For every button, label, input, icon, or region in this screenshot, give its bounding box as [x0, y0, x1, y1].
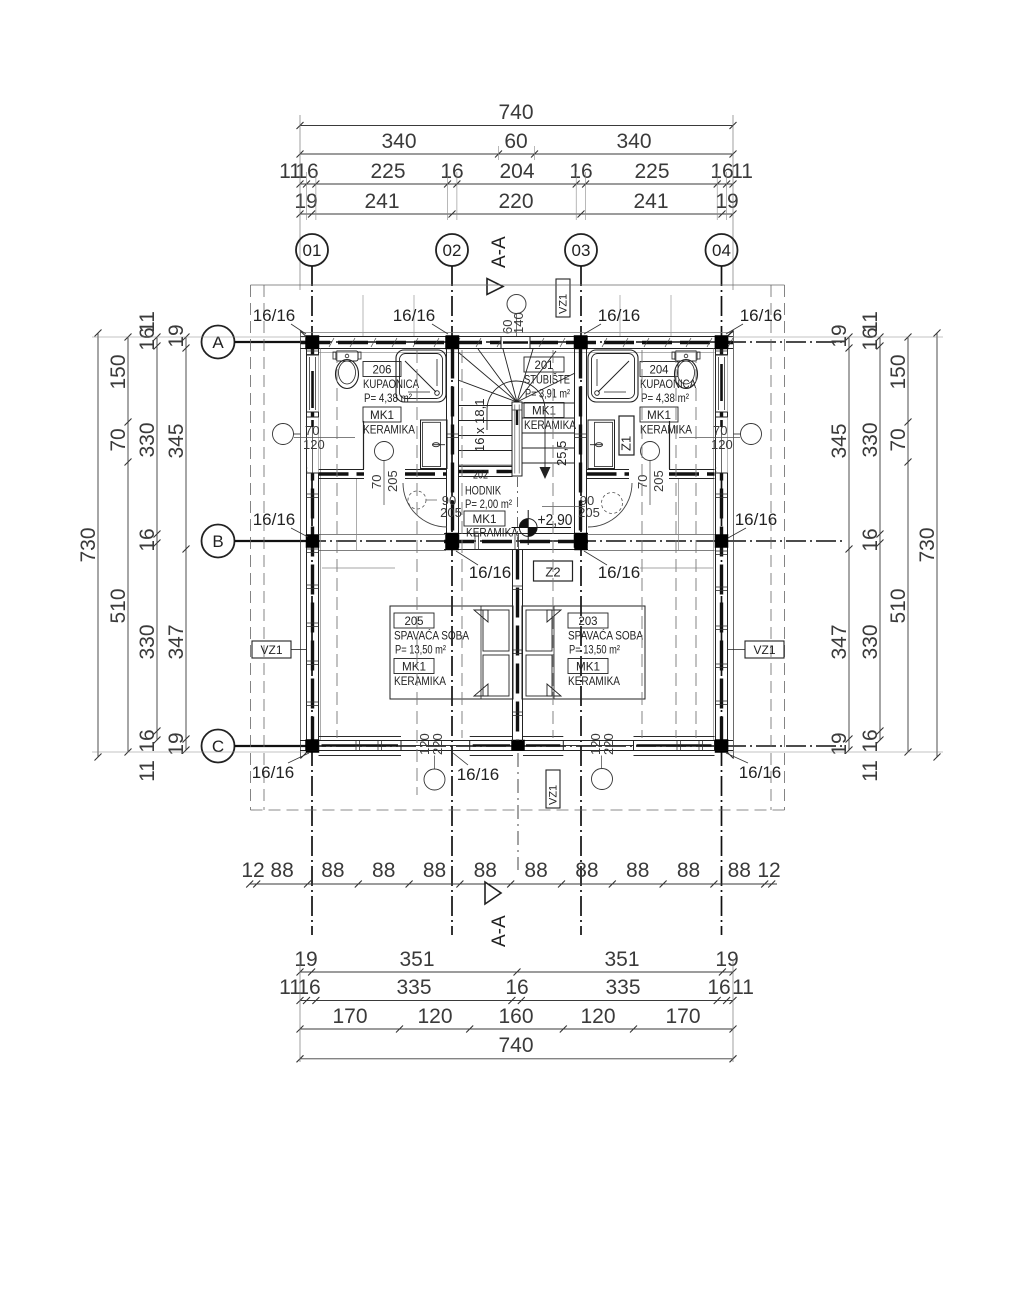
- svg-text:510: 510: [887, 588, 910, 623]
- svg-text:220: 220: [430, 733, 445, 755]
- svg-text:KERAMIKA: KERAMIKA: [394, 674, 446, 688]
- svg-text:HODNIK: HODNIK: [465, 484, 501, 498]
- svg-text:16/16: 16/16: [253, 510, 296, 529]
- svg-text:16: 16: [569, 160, 592, 183]
- svg-text:19: 19: [828, 324, 851, 347]
- svg-text:16/16: 16/16: [393, 306, 436, 325]
- svg-text:335: 335: [396, 976, 431, 999]
- svg-text:740: 740: [498, 101, 533, 124]
- svg-text:MK1: MK1: [647, 408, 671, 422]
- svg-text:19: 19: [165, 324, 188, 347]
- svg-text:SPAVAĆA SOBA: SPAVAĆA SOBA: [568, 628, 643, 643]
- svg-text:345: 345: [828, 423, 851, 458]
- svg-text:220: 220: [498, 190, 533, 213]
- svg-text:16: 16: [136, 327, 159, 350]
- svg-text:19: 19: [715, 190, 738, 213]
- svg-text:16/16: 16/16: [252, 763, 295, 782]
- svg-text:04: 04: [712, 241, 731, 260]
- svg-text:330: 330: [136, 624, 159, 659]
- svg-text:88: 88: [728, 859, 751, 882]
- svg-text:A-A: A-A: [489, 236, 510, 268]
- svg-text:204: 204: [650, 363, 669, 377]
- svg-text:P= 3,91 m²: P= 3,91 m²: [525, 387, 570, 401]
- svg-text:204: 204: [499, 160, 534, 183]
- svg-text:P= 4,38 m²: P= 4,38 m²: [364, 391, 412, 405]
- svg-text:KERAMIKA: KERAMIKA: [363, 423, 415, 437]
- svg-text:70: 70: [635, 475, 650, 489]
- svg-text:16: 16: [859, 729, 882, 752]
- svg-text:730: 730: [916, 527, 939, 562]
- svg-text:16 x 18,1: 16 x 18,1: [472, 399, 487, 453]
- svg-text:88: 88: [372, 859, 395, 882]
- svg-text:201: 201: [535, 358, 554, 372]
- svg-text:220: 220: [601, 733, 616, 755]
- svg-text:60: 60: [504, 130, 527, 153]
- svg-text:KERAMIKA: KERAMIKA: [568, 674, 620, 688]
- svg-text:16/16: 16/16: [740, 306, 783, 325]
- svg-text:KERAMIKA: KERAMIKA: [524, 418, 576, 432]
- svg-text:16: 16: [859, 327, 882, 350]
- svg-text:351: 351: [399, 948, 434, 971]
- svg-text:11: 11: [732, 976, 754, 999]
- svg-text:160: 160: [498, 1005, 533, 1028]
- svg-text:88: 88: [677, 859, 700, 882]
- svg-text:16: 16: [505, 976, 528, 999]
- svg-text:11: 11: [859, 760, 882, 782]
- svg-text:19: 19: [715, 948, 738, 971]
- svg-text:70: 70: [887, 428, 910, 451]
- svg-text:P= 13,50 m²: P= 13,50 m²: [395, 643, 446, 657]
- svg-text:SPAVAĆA SOBA: SPAVAĆA SOBA: [394, 628, 469, 643]
- svg-text:25,5: 25,5: [554, 441, 569, 466]
- svg-text:88: 88: [474, 859, 497, 882]
- svg-text:330: 330: [136, 422, 159, 457]
- svg-text:205: 205: [440, 505, 462, 520]
- svg-text:70: 70: [107, 428, 130, 451]
- svg-text:16/16: 16/16: [457, 765, 500, 784]
- svg-text:205: 205: [578, 505, 600, 520]
- svg-text:MK1: MK1: [370, 408, 394, 422]
- svg-text:+2,90: +2,90: [538, 512, 573, 529]
- svg-text:12: 12: [757, 859, 780, 882]
- svg-text:120: 120: [580, 1005, 615, 1028]
- svg-text:330: 330: [859, 624, 882, 659]
- svg-text:P= 4,38 m²: P= 4,38 m²: [641, 391, 689, 405]
- svg-text:70: 70: [369, 475, 384, 489]
- svg-text:225: 225: [370, 160, 405, 183]
- svg-text:330: 330: [859, 422, 882, 457]
- svg-text:170: 170: [332, 1005, 367, 1028]
- svg-text:C: C: [212, 737, 224, 756]
- svg-text:345: 345: [165, 423, 188, 458]
- svg-text:70: 70: [713, 423, 727, 438]
- svg-text:340: 340: [616, 130, 651, 153]
- svg-text:11: 11: [731, 160, 753, 183]
- svg-text:Z1: Z1: [619, 436, 634, 451]
- svg-text:88: 88: [321, 859, 344, 882]
- svg-text:150: 150: [107, 354, 130, 389]
- svg-text:120: 120: [417, 1005, 452, 1028]
- svg-text:KERAMIKA: KERAMIKA: [640, 423, 692, 437]
- svg-text:MK1: MK1: [473, 512, 497, 526]
- svg-text:16: 16: [136, 528, 159, 551]
- svg-text:16/16: 16/16: [739, 763, 782, 782]
- svg-text:88: 88: [626, 859, 649, 882]
- svg-text:510: 510: [107, 588, 130, 623]
- svg-text:12: 12: [241, 859, 264, 882]
- svg-text:16: 16: [707, 976, 730, 999]
- svg-text:70: 70: [305, 423, 319, 438]
- svg-text:VZ1: VZ1: [558, 294, 570, 314]
- svg-text:16: 16: [295, 160, 318, 183]
- svg-text:P= 13,50 m²: P= 13,50 m²: [569, 643, 620, 657]
- svg-text:02: 02: [443, 241, 462, 260]
- svg-text:730: 730: [77, 527, 100, 562]
- svg-text:88: 88: [575, 859, 598, 882]
- svg-text:120: 120: [711, 437, 733, 452]
- svg-text:16: 16: [136, 729, 159, 752]
- svg-text:202: 202: [473, 468, 488, 482]
- svg-text:340: 340: [381, 130, 416, 153]
- svg-text:205: 205: [385, 470, 400, 492]
- svg-text:170: 170: [665, 1005, 700, 1028]
- svg-text:203: 203: [579, 614, 598, 628]
- svg-text:KERAMIKA: KERAMIKA: [466, 526, 518, 540]
- svg-text:MK1: MK1: [402, 660, 426, 674]
- svg-text:351: 351: [604, 948, 639, 971]
- svg-text:03: 03: [572, 241, 591, 260]
- svg-text:16/16: 16/16: [598, 306, 641, 325]
- svg-text:KUPAONICA: KUPAONICA: [363, 377, 419, 391]
- svg-text:16/16: 16/16: [253, 306, 296, 325]
- svg-text:11: 11: [136, 760, 159, 782]
- svg-text:241: 241: [633, 190, 668, 213]
- svg-text:16: 16: [440, 160, 463, 183]
- svg-text:206: 206: [373, 363, 392, 377]
- svg-text:16: 16: [859, 528, 882, 551]
- svg-text:205: 205: [651, 470, 666, 492]
- svg-text:MK1: MK1: [576, 660, 600, 674]
- svg-text:347: 347: [165, 624, 188, 659]
- svg-text:88: 88: [524, 859, 547, 882]
- svg-text:B: B: [212, 532, 223, 551]
- svg-text:VZ1: VZ1: [548, 785, 560, 805]
- svg-text:88: 88: [270, 859, 293, 882]
- svg-text:740: 740: [498, 1034, 533, 1057]
- svg-text:335: 335: [605, 976, 640, 999]
- svg-text:A: A: [212, 333, 224, 352]
- svg-text:A-A: A-A: [489, 915, 510, 947]
- svg-text:16/16: 16/16: [598, 563, 641, 582]
- svg-text:347: 347: [828, 624, 851, 659]
- svg-text:225: 225: [634, 160, 669, 183]
- svg-text:150: 150: [887, 354, 910, 389]
- svg-text:88: 88: [423, 859, 446, 882]
- svg-text:16/16: 16/16: [735, 510, 778, 529]
- svg-text:01: 01: [303, 241, 322, 260]
- svg-text:241: 241: [364, 190, 399, 213]
- svg-text:19: 19: [294, 190, 317, 213]
- svg-text:16: 16: [297, 976, 320, 999]
- svg-text:140: 140: [511, 312, 526, 334]
- svg-text:120: 120: [303, 437, 325, 452]
- svg-text:19: 19: [294, 948, 317, 971]
- svg-text:P= 2,00 m²: P= 2,00 m²: [465, 497, 512, 511]
- svg-text:205: 205: [405, 614, 424, 628]
- svg-text:VZ1: VZ1: [753, 643, 775, 657]
- svg-text:VZ1: VZ1: [260, 643, 282, 657]
- svg-text:16/16: 16/16: [469, 563, 512, 582]
